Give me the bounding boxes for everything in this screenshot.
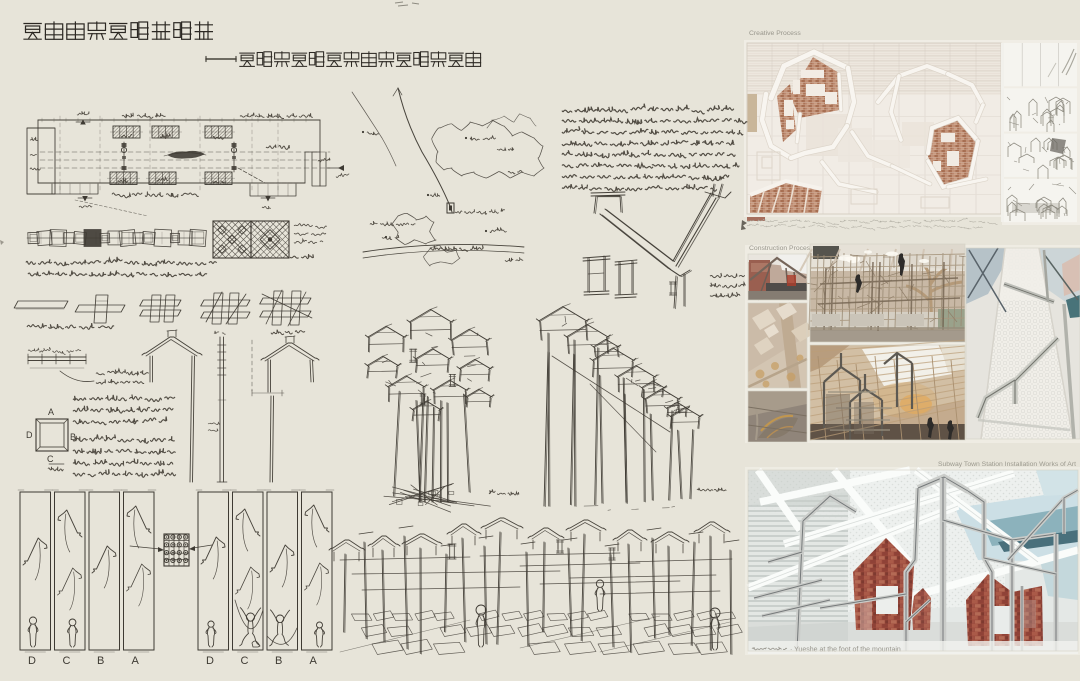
svg-text:A: A [132, 655, 140, 667]
svg-text:· Yueshe at the foot of the mo: · Yueshe at the foot of the mountain [790, 647, 901, 654]
svg-text:Construction Process: Construction Process [749, 245, 814, 252]
svg-text:D: D [206, 655, 214, 667]
svg-text:C: C [241, 655, 249, 667]
svg-text:Creative Process: Creative Process [749, 30, 801, 37]
svg-text:C: C [63, 655, 71, 667]
svg-text:A: A [48, 407, 54, 417]
svg-text:D: D [26, 430, 33, 440]
svg-text:Subway Town Station Installati: Subway Town Station Installation Works o… [938, 461, 1076, 468]
svg-text:B: B [97, 655, 104, 667]
svg-text:A: A [310, 655, 318, 667]
svg-text:B: B [275, 655, 282, 667]
svg-text:C: C [47, 454, 54, 464]
svg-text:D: D [28, 655, 36, 667]
